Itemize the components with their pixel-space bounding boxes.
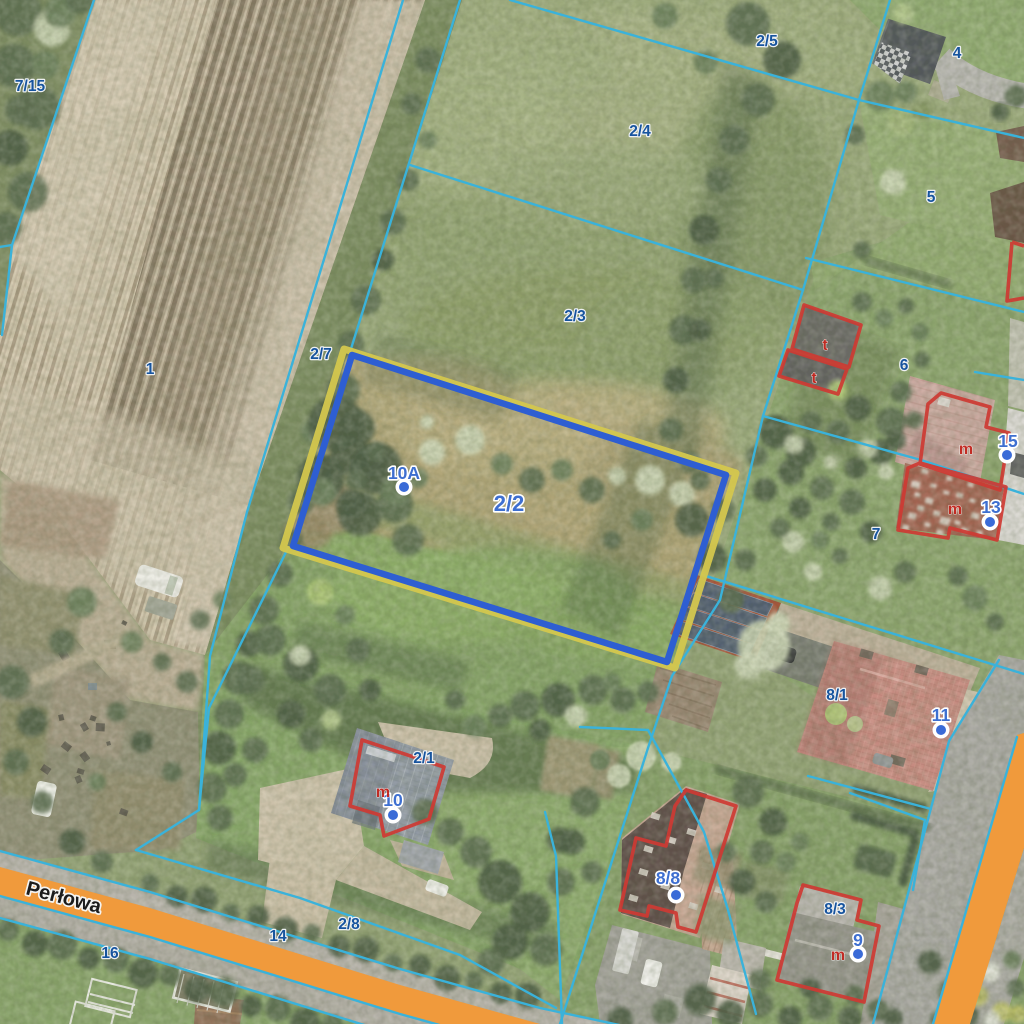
svg-text:14: 14 xyxy=(269,928,287,945)
svg-text:2/8: 2/8 xyxy=(338,916,360,933)
svg-text:7: 7 xyxy=(872,526,881,543)
svg-text:6: 6 xyxy=(900,357,909,374)
svg-text:2/2: 2/2 xyxy=(494,491,525,516)
svg-text:2/1: 2/1 xyxy=(413,750,435,767)
svg-text:m: m xyxy=(959,441,973,458)
svg-text:8/1: 8/1 xyxy=(826,687,848,704)
svg-text:15: 15 xyxy=(998,431,1018,451)
svg-text:8/8: 8/8 xyxy=(656,868,681,888)
svg-text:m: m xyxy=(948,501,962,518)
svg-text:1: 1 xyxy=(146,361,155,378)
svg-text:10A: 10A xyxy=(388,463,420,483)
svg-text:5: 5 xyxy=(927,189,936,206)
svg-text:2/4: 2/4 xyxy=(629,123,651,140)
svg-text:16: 16 xyxy=(101,945,119,962)
svg-text:t: t xyxy=(822,337,828,354)
svg-text:2/5: 2/5 xyxy=(756,33,778,50)
svg-text:4: 4 xyxy=(953,45,962,62)
svg-text:2/7: 2/7 xyxy=(310,346,332,363)
svg-text:8/3: 8/3 xyxy=(824,901,846,918)
svg-text:11: 11 xyxy=(932,705,951,725)
svg-text:9: 9 xyxy=(853,930,863,950)
svg-text:2/3: 2/3 xyxy=(564,308,586,325)
svg-text:m: m xyxy=(376,784,390,801)
svg-text:m: m xyxy=(831,947,845,964)
svg-text:t: t xyxy=(811,370,817,387)
svg-text:13: 13 xyxy=(981,497,1001,517)
svg-text:7/15: 7/15 xyxy=(15,78,46,95)
